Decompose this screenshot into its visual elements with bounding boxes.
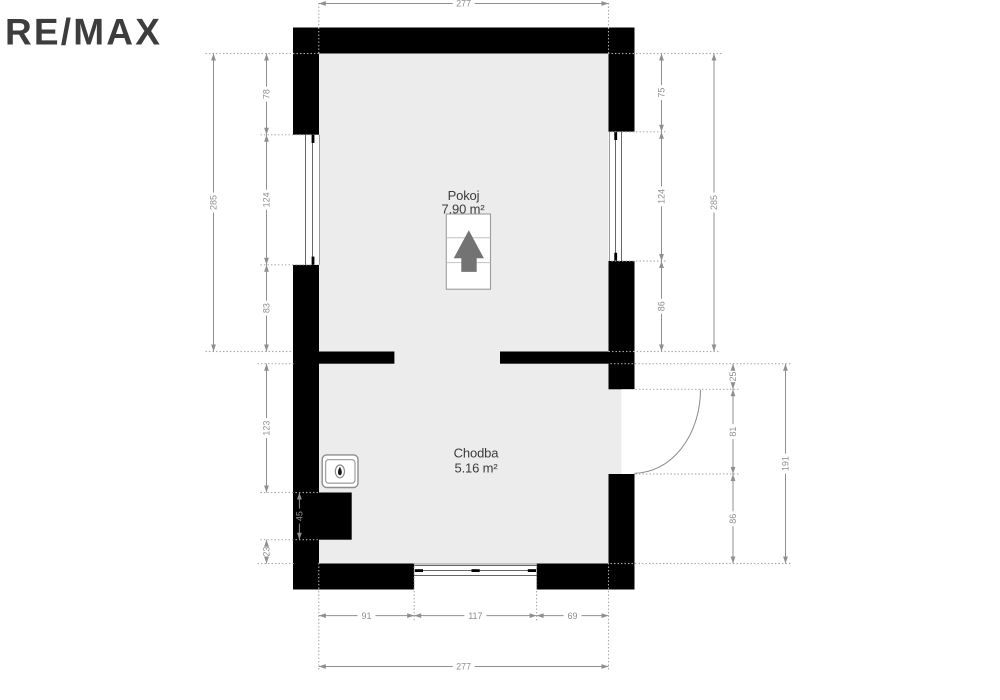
- svg-text:78: 78: [262, 89, 272, 99]
- svg-text:45: 45: [295, 511, 305, 521]
- svg-text:81: 81: [728, 427, 738, 437]
- svg-text:191: 191: [781, 456, 791, 471]
- svg-text:277: 277: [456, 662, 471, 672]
- svg-text:7.90 m²: 7.90 m²: [441, 202, 485, 217]
- svg-text:277: 277: [456, 0, 471, 9]
- svg-text:5.16 m²: 5.16 m²: [454, 460, 498, 475]
- svg-text:86: 86: [728, 514, 738, 524]
- svg-text:91: 91: [361, 611, 371, 621]
- svg-text:285: 285: [709, 195, 719, 210]
- svg-text:124: 124: [657, 189, 667, 204]
- svg-text:123: 123: [262, 421, 272, 436]
- svg-text:124: 124: [262, 192, 272, 207]
- svg-text:83: 83: [262, 303, 272, 313]
- svg-text:86: 86: [657, 301, 667, 311]
- svg-text:Chodba: Chodba: [454, 445, 500, 460]
- svg-text:285: 285: [209, 195, 219, 210]
- svg-text:RE/MAX: RE/MAX: [5, 11, 162, 52]
- svg-text:75: 75: [657, 88, 667, 98]
- svg-text:25: 25: [728, 371, 738, 381]
- svg-text:23: 23: [262, 547, 272, 557]
- svg-text:69: 69: [568, 611, 578, 621]
- svg-text:117: 117: [468, 611, 482, 621]
